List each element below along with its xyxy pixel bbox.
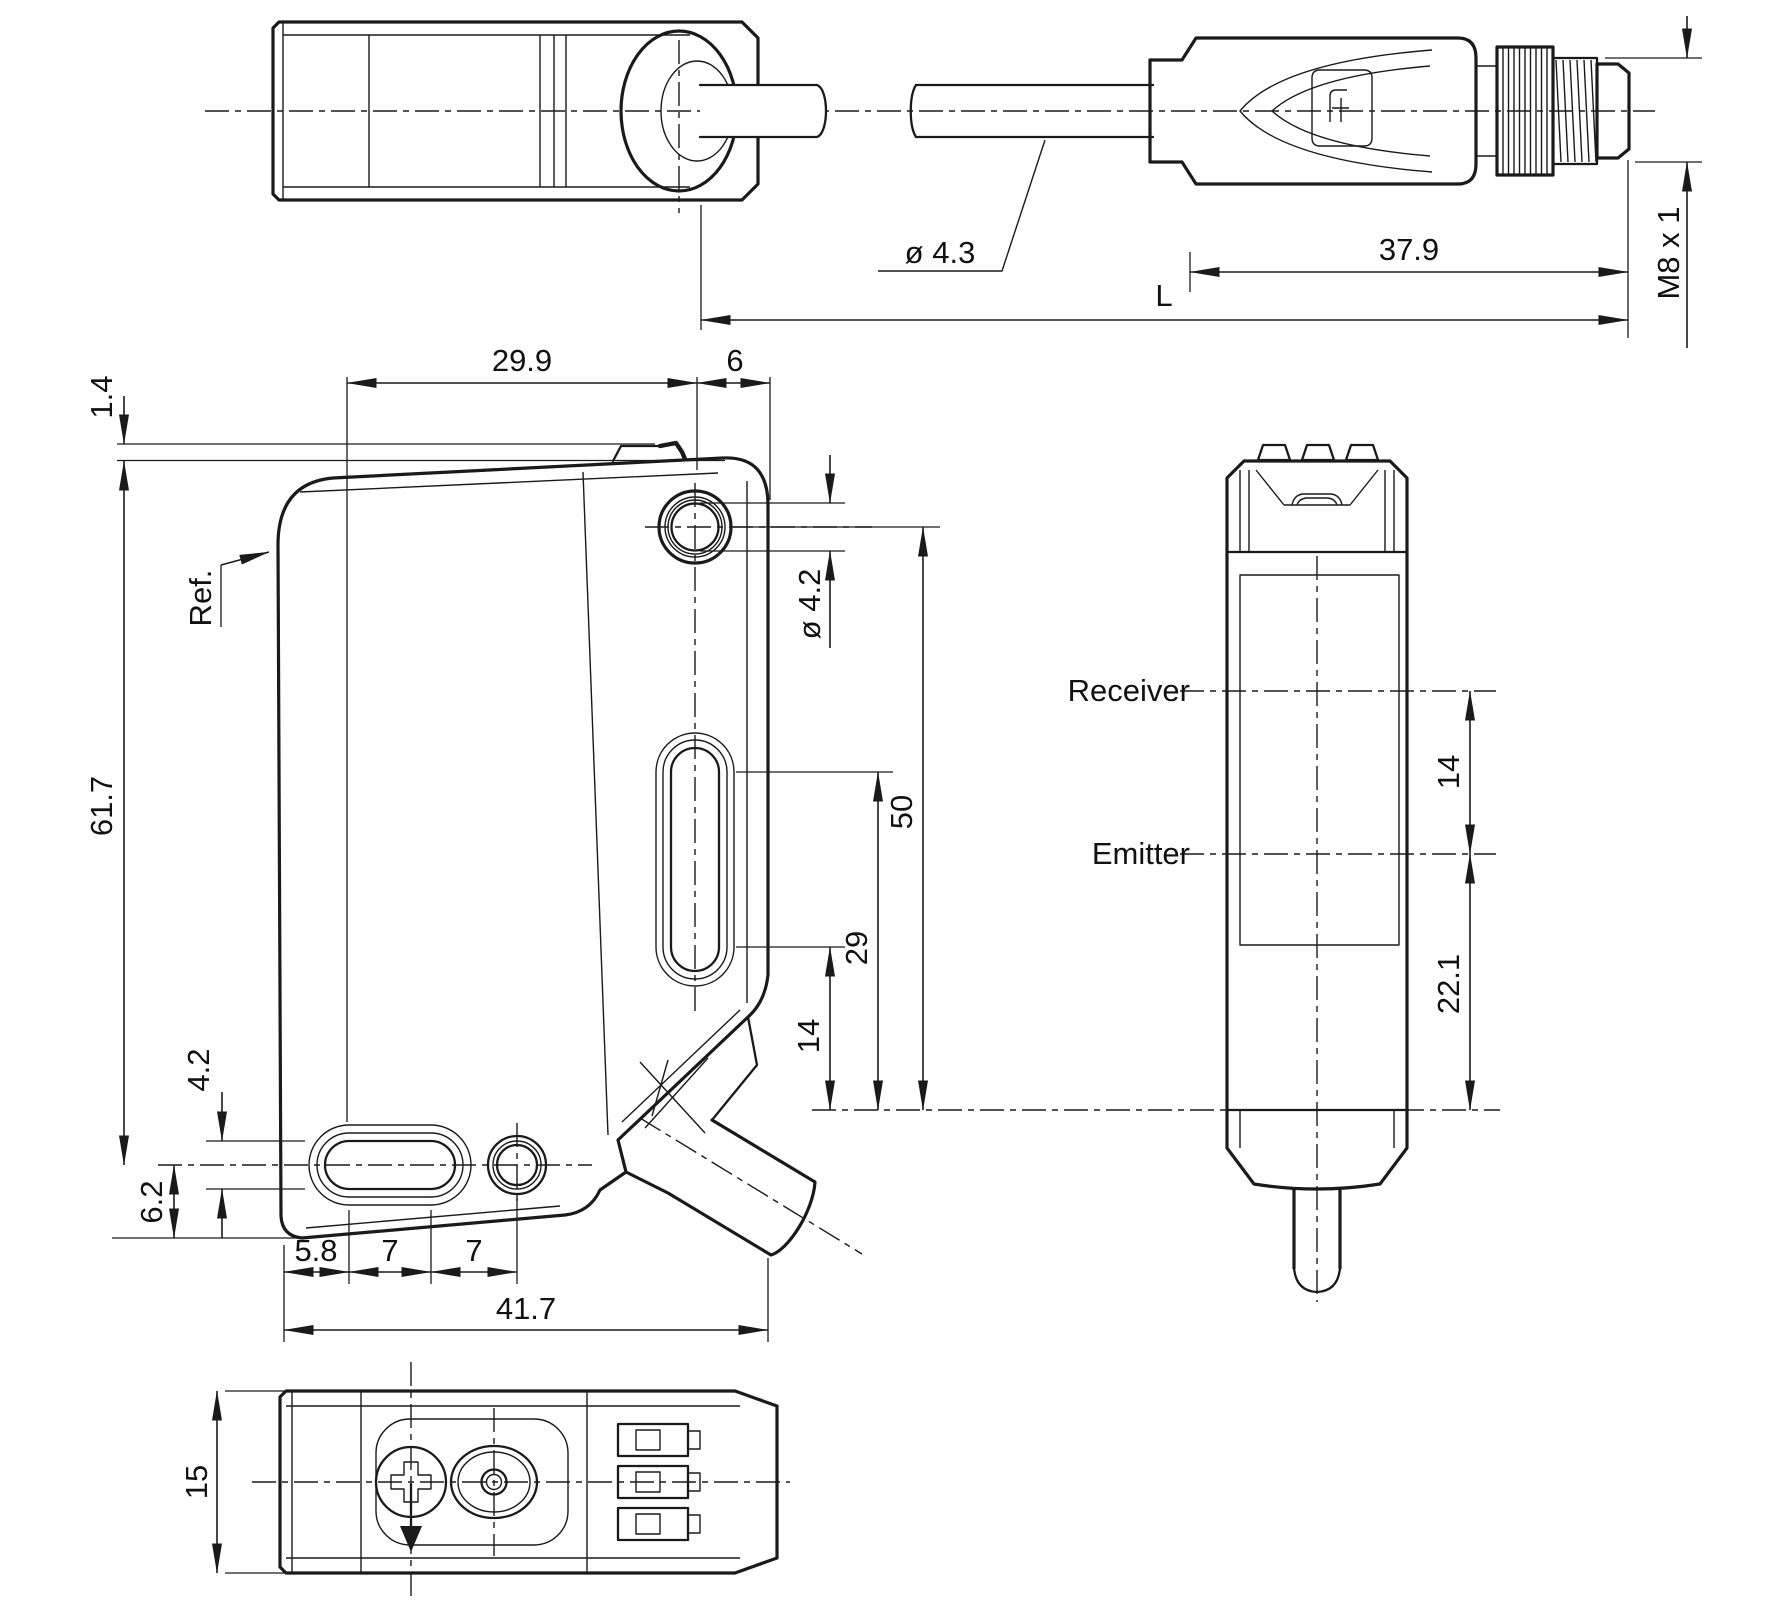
dim-body-depth: 15 bbox=[179, 1465, 214, 1499]
dip-switch-1 bbox=[618, 1424, 700, 1456]
dim-hole-to-axis: 50 bbox=[884, 795, 919, 829]
cable-segment-2 bbox=[911, 85, 1153, 137]
dip-switch-3 bbox=[618, 1508, 700, 1540]
dim-emitter-to-bottom: 22.1 bbox=[1431, 954, 1466, 1014]
dip-switch-tab bbox=[688, 1431, 700, 1449]
dim-beam-spacing: 14 bbox=[1431, 755, 1466, 789]
side-view-extension-lines bbox=[112, 377, 940, 1342]
front-view-lens-detail bbox=[1292, 494, 1342, 505]
cable-boss-ridge bbox=[712, 1017, 757, 1120]
dim-thread-spec: M8 x 1 bbox=[1651, 206, 1686, 299]
top-view: 37.9 L M8 x 1 ø 4.3 bbox=[205, 16, 1702, 348]
dip-switch-tab bbox=[688, 1515, 700, 1533]
dim-slot-to-bottom: 6.2 bbox=[134, 1180, 169, 1223]
mid-slot-ring bbox=[663, 740, 727, 979]
front-view-window bbox=[1240, 575, 1399, 945]
side-view-centerlines bbox=[158, 483, 872, 1254]
label-receiver: Receiver bbox=[1068, 673, 1190, 708]
clamp-tab bbox=[613, 446, 660, 461]
clamp-tab-wedge bbox=[660, 443, 685, 459]
ref-leader-arrow bbox=[221, 552, 269, 565]
bottom-view: 15 bbox=[179, 1362, 790, 1600]
front-view-centerlines bbox=[812, 556, 1500, 1302]
bottom-view-centerlines bbox=[252, 1362, 790, 1600]
dim-rail-height: 1.4 bbox=[84, 375, 119, 418]
dip-switch-lever bbox=[636, 1514, 660, 1534]
dip-switch-body bbox=[618, 1508, 688, 1540]
cable-segment-1 bbox=[700, 85, 826, 137]
front-view: Receiver Emitter 14 22.1 bbox=[812, 445, 1500, 1302]
dim-body-width: 41.7 bbox=[496, 1291, 556, 1326]
dim-body-height: 61.7 bbox=[84, 776, 119, 836]
dim-connector-length: 37.9 bbox=[1379, 232, 1439, 267]
dimensional-drawing: 37.9 L M8 x 1 ø 4.3 29.9 bbox=[0, 0, 1772, 1606]
dim-hole-offset: 29.9 bbox=[492, 343, 552, 378]
dim-pitch-b: 7 bbox=[465, 1233, 482, 1268]
dimensional-drawing-page: 37.9 L M8 x 1 ø 4.3 29.9 bbox=[0, 0, 1772, 1606]
dim-hole-to-edge: 6 bbox=[726, 343, 743, 378]
dim-edge-to-slot: 5.8 bbox=[294, 1233, 337, 1268]
dim-total-length: L bbox=[1155, 278, 1172, 313]
dim-hole-diameter: ø 4.2 bbox=[792, 569, 827, 640]
front-view-top-tabs bbox=[1258, 445, 1378, 460]
side-view: 29.9 6 1.4 61.7 ø 4.2 50 29 14 4.2 6.2 5… bbox=[84, 343, 940, 1342]
adjuster-arrow-head bbox=[400, 1526, 422, 1552]
dim-slot-top-to-axis: 29 bbox=[839, 931, 874, 965]
connector-logo bbox=[1312, 70, 1372, 146]
dip-switch-lever bbox=[636, 1430, 660, 1450]
dip-switch-body bbox=[618, 1424, 688, 1456]
label-emitter: Emitter bbox=[1092, 836, 1190, 871]
dim-slot-width: 4.2 bbox=[181, 1048, 216, 1091]
dim-cable-diameter: ø 4.3 bbox=[905, 235, 976, 270]
label-reference: Ref. bbox=[183, 570, 218, 627]
dim-slot-bottom-to-axis: 14 bbox=[791, 1019, 826, 1053]
dim-pitch-a: 7 bbox=[381, 1233, 398, 1268]
side-view-inner-lines bbox=[300, 472, 747, 1228]
